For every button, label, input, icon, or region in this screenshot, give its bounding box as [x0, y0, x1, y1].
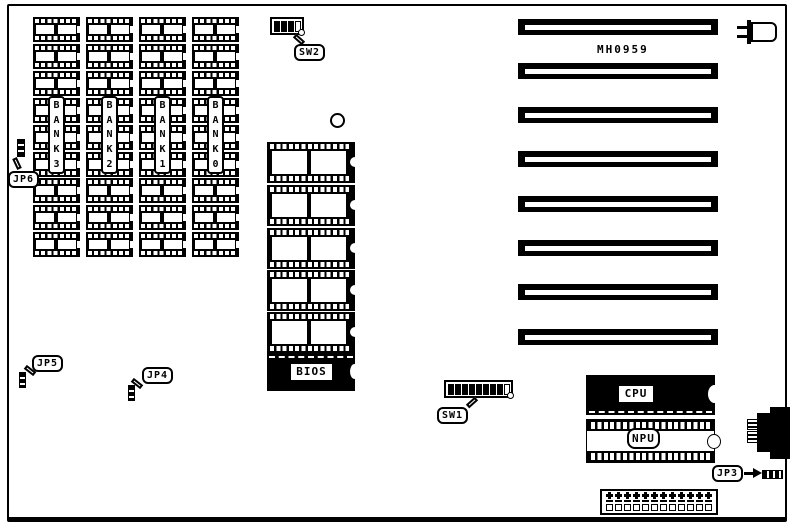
- bank-label-bank2: BANK2: [101, 96, 118, 174]
- power-pin: [632, 492, 640, 512]
- socket-pin-row: [194, 207, 235, 211]
- dip-switch-sw2: [270, 17, 304, 35]
- socket-notch: [130, 80, 134, 87]
- npu-socket-notch: [707, 434, 721, 449]
- socket-window: [217, 52, 235, 61]
- socket-window: [142, 79, 160, 88]
- dip-switch-cell-on: [281, 21, 287, 32]
- bank-label-char: N: [53, 129, 59, 140]
- socket-notch: [350, 243, 360, 253]
- din-connector-pin-block: [747, 419, 758, 430]
- npu-pin-row-bottom: [587, 451, 714, 462]
- jumper-jp4-pins: [128, 385, 135, 401]
- bank-label-char: B: [159, 100, 165, 111]
- socket-pin-row: [194, 251, 235, 255]
- socket-window: [89, 79, 107, 88]
- socket-window: [89, 52, 107, 61]
- power-pin-head: [633, 492, 640, 499]
- socket-notch: [77, 214, 81, 221]
- socket-notch: [130, 214, 134, 221]
- socket-pin-row: [35, 197, 76, 201]
- socket-pin-row: [141, 90, 182, 94]
- socket-window: [111, 240, 129, 249]
- power-pin-hole: [633, 504, 640, 511]
- socket-window: [89, 240, 107, 249]
- socket-window: [272, 279, 307, 302]
- motherboard-jumper-diagram: MH0959 BIOS CPU NPU SW2 SW1 JP6 JP5 JP4: [0, 0, 792, 527]
- socket-pin-row: [35, 234, 76, 238]
- socket-pin-row: [88, 224, 129, 228]
- jp4-label-balloon: JP4: [142, 367, 173, 384]
- socket-pin-row: [141, 234, 182, 238]
- socket-pin-row: [88, 19, 129, 23]
- socket-window: [217, 79, 235, 88]
- socket-pin-row: [194, 234, 235, 238]
- bank-label-char: 3: [53, 159, 59, 170]
- socket-window: [311, 194, 346, 217]
- dip-switch-cell-on: [469, 384, 475, 395]
- socket-notch: [236, 214, 240, 221]
- cpu-chip: CPU: [586, 375, 715, 415]
- memory-socket: [192, 44, 239, 69]
- bank-label-bank3: BANK3: [48, 96, 65, 174]
- socket-pin-row: [141, 73, 182, 77]
- socket-notch: [236, 53, 240, 60]
- power-pin: [696, 492, 704, 512]
- expansion-slot-opening: [525, 25, 711, 30]
- socket-notch: [236, 187, 240, 194]
- socket-pin-row: [88, 90, 129, 94]
- socket-pin-row: [194, 46, 235, 50]
- memory-socket: [86, 205, 133, 230]
- power-pin: [678, 492, 686, 512]
- socket-notch: [130, 134, 134, 141]
- npu-label-balloon: NPU: [627, 428, 660, 449]
- bank-label-char: 2: [106, 159, 112, 170]
- socket-pin-row: [270, 187, 349, 192]
- socket-pin-row: [270, 176, 349, 181]
- socket-window: [142, 25, 160, 34]
- socket-notch: [236, 241, 240, 248]
- power-pin: [659, 492, 667, 512]
- power-pin-hole: [705, 504, 712, 511]
- socket-window: [111, 79, 129, 88]
- socket-window: [58, 213, 76, 222]
- cpu-chip-notch: [708, 385, 721, 403]
- socket-pin-row: [141, 19, 182, 23]
- expansion-slot: [518, 329, 718, 345]
- socket-pin-row: [141, 224, 182, 228]
- expansion-slot: [518, 240, 718, 256]
- socket-window: [58, 186, 76, 195]
- memory-socket: [33, 71, 80, 96]
- keyboard-connector-pin: [737, 26, 748, 29]
- expansion-slot: [518, 19, 718, 35]
- power-pin: [614, 492, 622, 512]
- socket-pin-row: [35, 180, 76, 184]
- socket-window: [111, 213, 129, 222]
- bank-label-char: 0: [212, 159, 218, 170]
- socket-pin-row: [270, 346, 349, 351]
- memory-socket: [192, 232, 239, 257]
- socket-notch: [183, 214, 187, 221]
- power-pin-hole: [642, 504, 649, 511]
- expansion-slot-opening: [525, 290, 711, 295]
- power-pin-head: [669, 492, 676, 499]
- memory-socket: [86, 44, 133, 69]
- socket-pin-row: [88, 251, 129, 255]
- socket-notch: [77, 80, 81, 87]
- socket-pin-row: [194, 197, 235, 201]
- power-pin-hole: [615, 504, 622, 511]
- socket-pin-row: [88, 46, 129, 50]
- bank-label-char: 1: [159, 159, 165, 170]
- expansion-slot-opening: [525, 157, 711, 162]
- memory-socket: [86, 71, 133, 96]
- bank-label-char: N: [212, 129, 218, 140]
- power-pin-dash: [660, 500, 667, 502]
- expansion-slot: [518, 63, 718, 79]
- socket-pin-row: [270, 144, 349, 149]
- bank-label-char: B: [53, 100, 59, 111]
- power-pin-dash: [615, 500, 622, 502]
- socket-notch: [130, 241, 134, 248]
- socket-window: [217, 25, 235, 34]
- socket-window: [111, 25, 129, 34]
- power-pin: [687, 492, 695, 512]
- power-pin-head: [696, 492, 703, 499]
- socket-pin-row: [88, 73, 129, 77]
- expansion-slot: [518, 284, 718, 300]
- socket-pin-row: [270, 230, 349, 235]
- socket-pin-row: [88, 207, 129, 211]
- socket-window: [89, 186, 107, 195]
- memory-socket: [139, 205, 186, 230]
- memory-socket: [86, 178, 133, 203]
- dip-switch-cell-on: [476, 384, 482, 395]
- power-pin-hole: [651, 504, 658, 511]
- socket-pin-row: [270, 304, 349, 309]
- bank-label-char: N: [159, 129, 165, 140]
- socket-window: [164, 240, 182, 249]
- bank-label-bank0: BANK0: [207, 96, 224, 174]
- power-pin-hole: [606, 504, 613, 511]
- socket-pin-row: [88, 234, 129, 238]
- sw1-label-balloon: SW1: [437, 407, 468, 424]
- power-pin: [605, 492, 613, 512]
- socket-window: [164, 186, 182, 195]
- socket-window: [164, 213, 182, 222]
- power-pin-dash: [606, 500, 613, 502]
- socket-pin-row: [35, 63, 76, 67]
- socket-window: [142, 240, 160, 249]
- socket-pin-row: [141, 180, 182, 184]
- socket-window: [164, 25, 182, 34]
- large-dip-socket: [267, 228, 355, 269]
- bank-label-char: A: [106, 115, 112, 126]
- dip-switch-cell-on: [274, 21, 280, 32]
- power-pin-dash: [633, 500, 640, 502]
- power-pin-head: [606, 492, 613, 499]
- socket-window: [36, 213, 54, 222]
- socket-notch: [350, 285, 360, 295]
- cpu-chip-label: CPU: [618, 385, 654, 403]
- power-pin-dash: [651, 500, 658, 502]
- socket-window: [58, 79, 76, 88]
- socket-pin-row: [35, 36, 76, 40]
- socket-notch: [77, 187, 81, 194]
- memory-socket: [139, 17, 186, 42]
- sw2-label-balloon: SW2: [294, 44, 325, 61]
- socket-notch: [183, 80, 187, 87]
- power-pin-dash: [687, 500, 694, 502]
- socket-pin-row: [35, 251, 76, 255]
- socket-pin-row: [141, 46, 182, 50]
- memory-socket: [139, 178, 186, 203]
- socket-notch: [183, 26, 187, 33]
- socket-window: [311, 279, 346, 302]
- jumper-jp3-pins: [762, 470, 783, 479]
- socket-notch: [236, 26, 240, 33]
- socket-pin-row: [194, 90, 235, 94]
- cpu-chip-edge-line: [589, 411, 712, 413]
- socket-notch: [77, 161, 81, 168]
- socket-window: [58, 25, 76, 34]
- power-pin-head: [624, 492, 631, 499]
- npu-pins: [591, 453, 710, 460]
- socket-notch: [130, 26, 134, 33]
- dip-switch-cell-on: [490, 384, 496, 395]
- socket-notch: [130, 161, 134, 168]
- socket-window: [89, 213, 107, 222]
- socket-notch: [77, 107, 81, 114]
- socket-pin-row: [194, 180, 235, 184]
- bank-label-char: K: [106, 144, 112, 155]
- dip-switch-dot: [507, 392, 514, 399]
- power-pin-hole: [687, 504, 694, 511]
- socket-notch: [77, 53, 81, 60]
- socket-window: [272, 237, 307, 260]
- power-pin-head: [687, 492, 694, 499]
- expansion-slot-opening: [525, 202, 711, 207]
- memory-socket: [86, 232, 133, 257]
- socket-notch: [350, 200, 360, 210]
- power-pin-dash: [624, 500, 631, 502]
- power-pin-dash: [642, 500, 649, 502]
- socket-window: [195, 240, 213, 249]
- socket-pin-row: [194, 63, 235, 67]
- expansion-slot-opening: [525, 335, 711, 340]
- memory-socket: [192, 178, 239, 203]
- dip-switch-cell-on: [288, 21, 294, 32]
- power-pin-head: [651, 492, 658, 499]
- socket-window: [142, 186, 160, 195]
- dip-switch-cell-on: [455, 384, 461, 395]
- power-pin-hole: [624, 504, 631, 511]
- socket-pin-row: [141, 251, 182, 255]
- jumper-jp5-pins: [19, 372, 26, 388]
- bank-label-char: A: [53, 115, 59, 126]
- memory-socket: [139, 232, 186, 257]
- keyboard-connector-pin: [737, 35, 748, 38]
- power-pin-hole: [696, 504, 703, 511]
- socket-window: [36, 240, 54, 249]
- dip-switch-cell-on: [448, 384, 454, 395]
- socket-window: [195, 213, 213, 222]
- socket-notch: [236, 80, 240, 87]
- expansion-slot: [518, 151, 718, 167]
- expansion-slot: [518, 196, 718, 212]
- socket-pin-row: [35, 224, 76, 228]
- socket-window: [311, 237, 346, 260]
- socket-pin-row: [35, 73, 76, 77]
- socket-window: [36, 186, 54, 195]
- dip-switch-dot: [298, 29, 305, 36]
- power-pin-head: [642, 492, 649, 499]
- memory-socket: [33, 232, 80, 257]
- din-connector-body: [757, 413, 790, 452]
- socket-window: [311, 151, 346, 174]
- power-pin: [650, 492, 658, 512]
- power-pin-dash: [678, 500, 685, 502]
- bank-label-char: K: [212, 144, 218, 155]
- keyboard-connector: [751, 22, 777, 42]
- socket-window: [217, 240, 235, 249]
- socket-notch: [77, 26, 81, 33]
- power-connector: [600, 489, 718, 515]
- bank-label-char: K: [159, 144, 165, 155]
- bank-label-char: K: [53, 144, 59, 155]
- memory-socket: [139, 71, 186, 96]
- din-connector-pin-block: [747, 431, 758, 443]
- socket-window: [217, 186, 235, 195]
- socket-notch: [183, 107, 187, 114]
- socket-pin-row: [35, 19, 76, 23]
- socket-window: [272, 321, 307, 344]
- socket-pin-row: [194, 36, 235, 40]
- power-pin: [705, 492, 713, 512]
- socket-window: [58, 52, 76, 61]
- socket-window: [195, 25, 213, 34]
- dip-switch-sw1: [444, 380, 513, 398]
- socket-pin-row: [88, 36, 129, 40]
- jp6-label-balloon: JP6: [8, 171, 39, 188]
- socket-window: [36, 52, 54, 61]
- socket-pin-row: [88, 63, 129, 67]
- jp3-label-balloon: JP3: [712, 465, 743, 482]
- bios-chip-notch: [350, 364, 359, 379]
- memory-socket: [33, 178, 80, 203]
- bank-label-char: A: [159, 115, 165, 126]
- socket-pin-row: [35, 90, 76, 94]
- socket-pin-row: [141, 36, 182, 40]
- bank-label-char: N: [106, 129, 112, 140]
- socket-pin-row: [270, 262, 349, 267]
- socket-pin-row: [270, 314, 349, 319]
- expansion-slot: [518, 107, 718, 123]
- large-dip-socket: [267, 270, 355, 311]
- socket-notch: [77, 134, 81, 141]
- socket-window: [195, 186, 213, 195]
- socket-pin-row: [194, 224, 235, 228]
- bios-chip-edge-line: [269, 356, 353, 358]
- power-pin-head: [660, 492, 667, 499]
- power-pin-dash: [705, 500, 712, 502]
- socket-notch: [183, 53, 187, 60]
- dip-switch-cell-on: [483, 384, 489, 395]
- power-pin-head: [615, 492, 622, 499]
- socket-notch: [130, 187, 134, 194]
- socket-window: [311, 321, 346, 344]
- socket-notch: [130, 107, 134, 114]
- power-pin: [669, 492, 677, 512]
- socket-window: [195, 79, 213, 88]
- socket-pin-row: [88, 180, 129, 184]
- large-dip-socket: [267, 185, 355, 226]
- bank-label-char: B: [106, 100, 112, 111]
- socket-window: [36, 25, 54, 34]
- memory-socket: [33, 205, 80, 230]
- power-pin: [623, 492, 631, 512]
- socket-pin-row: [194, 19, 235, 23]
- power-pin-hole: [660, 504, 667, 511]
- socket-pin-row: [141, 63, 182, 67]
- power-pin: [641, 492, 649, 512]
- socket-pin-row: [141, 197, 182, 201]
- large-dip-socket: [267, 312, 355, 353]
- large-dip-socket: [267, 142, 355, 183]
- bios-chip: BIOS: [267, 353, 355, 391]
- bank-label-char: A: [212, 115, 218, 126]
- socket-window: [142, 213, 160, 222]
- power-pin-hole: [678, 504, 685, 511]
- socket-pin-row: [194, 73, 235, 77]
- socket-notch: [77, 241, 81, 248]
- bank-label-bank1: BANK1: [154, 96, 171, 174]
- memory-socket: [33, 44, 80, 69]
- socket-window: [58, 240, 76, 249]
- memory-socket: [192, 71, 239, 96]
- power-pin-dash: [696, 500, 703, 502]
- bios-chip-label: BIOS: [290, 363, 333, 381]
- socket-window: [36, 79, 54, 88]
- socket-window: [142, 52, 160, 61]
- socket-pin-row: [35, 207, 76, 211]
- memory-socket: [86, 17, 133, 42]
- socket-window: [164, 52, 182, 61]
- socket-window: [89, 25, 107, 34]
- board-model-label: MH0959: [597, 43, 649, 56]
- jp5-label-balloon: JP5: [32, 355, 63, 372]
- expansion-slot-opening: [525, 69, 711, 74]
- socket-notch: [350, 157, 360, 167]
- memory-socket: [33, 17, 80, 42]
- socket-notch: [183, 134, 187, 141]
- socket-notch: [236, 161, 240, 168]
- socket-window: [111, 52, 129, 61]
- socket-window: [272, 194, 307, 217]
- socket-window: [217, 213, 235, 222]
- bank-label-char: B: [212, 100, 218, 111]
- expansion-slot-opening: [525, 113, 711, 118]
- socket-notch: [350, 327, 360, 337]
- socket-notch: [183, 187, 187, 194]
- power-pin-hole: [669, 504, 676, 511]
- socket-window: [164, 79, 182, 88]
- socket-notch: [183, 241, 187, 248]
- power-pin-head: [705, 492, 712, 499]
- socket-notch: [236, 134, 240, 141]
